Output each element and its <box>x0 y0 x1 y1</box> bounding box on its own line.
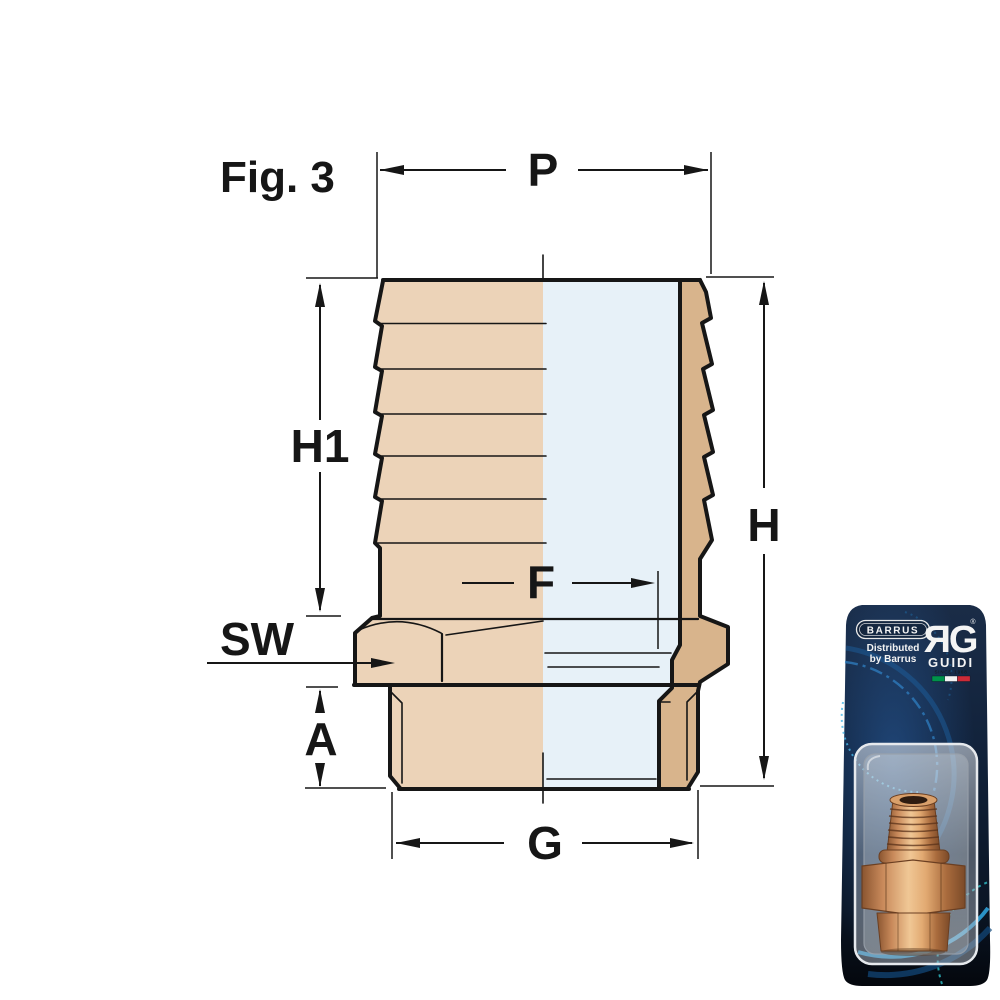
label-H: H <box>747 499 780 551</box>
registered-mark: ® <box>970 618 976 626</box>
fitting-left-half <box>355 280 543 788</box>
dimension-A: A <box>304 687 386 788</box>
dimension-P: P <box>377 144 711 278</box>
lower-hex <box>877 913 950 951</box>
arrow-down <box>315 588 325 612</box>
figure-label: Fig. 3 <box>220 153 335 202</box>
fitting-body <box>354 255 728 803</box>
technical-drawing-page: P H1 H F SW A <box>0 0 1000 1000</box>
product-shadow <box>881 948 945 956</box>
italian-flag <box>932 676 970 682</box>
dimension-G: G <box>392 790 698 869</box>
guidi-tagline: SINCE 1968 <box>934 670 967 675</box>
arrow-right <box>670 838 694 848</box>
arrow-down <box>759 756 769 780</box>
bore-hole <box>900 796 928 804</box>
label-A: A <box>304 713 337 765</box>
arrow-down <box>315 763 325 787</box>
dimension-H1: H1 <box>291 278 378 616</box>
label-P: P <box>528 144 559 196</box>
arrow-up <box>315 283 325 307</box>
label-SW: SW <box>220 613 295 665</box>
guidi-name: GUIDI <box>928 655 974 670</box>
arrow-left <box>380 165 404 175</box>
union-nut <box>862 860 965 915</box>
fitting-diagram: P H1 H F SW A <box>0 0 1000 1000</box>
arrow-up <box>759 281 769 305</box>
arrow-left <box>396 838 420 848</box>
label-H1: H1 <box>291 420 350 472</box>
arrow-up <box>315 689 325 713</box>
barrus-badge-label: BARRUS <box>867 626 919 637</box>
label-G: G <box>527 817 563 869</box>
barrus-badge: BARRUS <box>857 621 930 639</box>
product-packaging: BARRUS Distributed by Barrus ЯG ® GUIDI … <box>841 605 990 986</box>
distributed-line2: by Barrus <box>870 654 917 665</box>
label-F: F <box>527 556 555 608</box>
distributed-line1: Distributed <box>867 643 920 654</box>
arrow-right <box>684 165 708 175</box>
